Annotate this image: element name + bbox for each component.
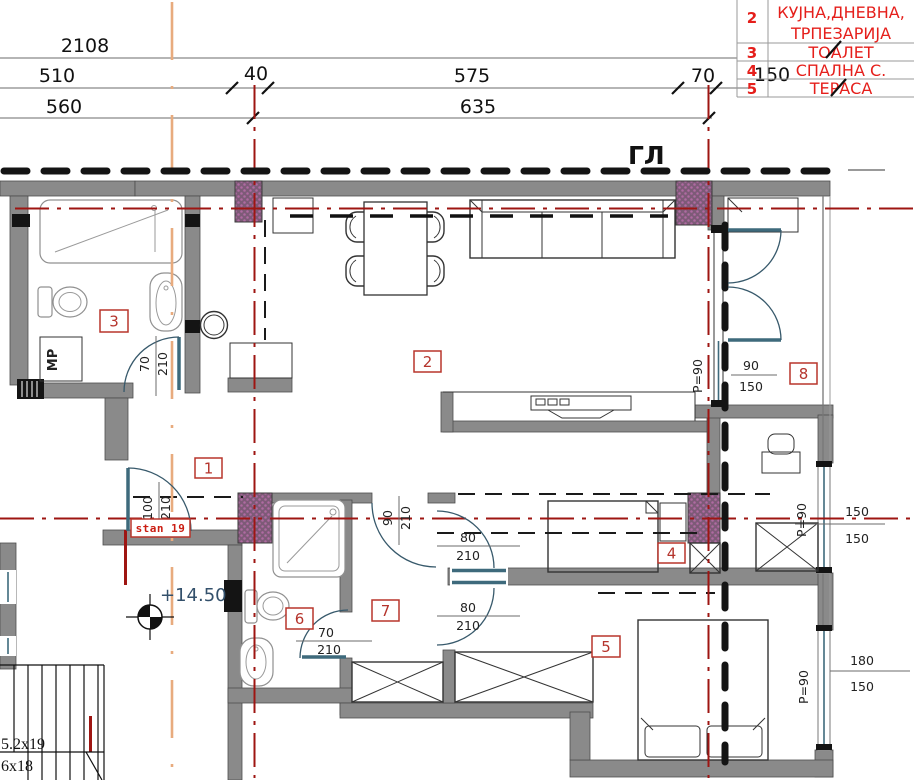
legend-num-3: 3 (747, 44, 757, 62)
toilet-bath (38, 287, 87, 317)
dimension-strings: 2108 510 40 575 70 150 560 635 (0, 35, 790, 124)
svg-text:8: 8 (799, 365, 809, 383)
svg-text:P=90: P=90 (794, 503, 809, 537)
wall-top-hatched (0, 181, 135, 196)
dim-hall-lower-door: 80 210 (437, 600, 520, 633)
legend-num-5: 5 (747, 80, 757, 98)
svg-text:5: 5 (601, 638, 611, 656)
svg-text:80: 80 (460, 530, 476, 545)
room-tag-corridor: 7 (372, 600, 399, 621)
wall-room5-bottom (570, 760, 833, 777)
dim-total: 2108 (61, 35, 109, 57)
wall-room7-top-post (428, 493, 455, 503)
wall-corridor-bottom (340, 703, 593, 718)
wall-hall-left (105, 398, 128, 460)
legend-label-toilet: ТОАЛЕТ (807, 43, 873, 62)
column-icon (235, 181, 262, 222)
section-label: ГЛ (628, 141, 665, 170)
svg-text:210: 210 (456, 548, 480, 563)
dim-toilet-door: 70 210 (296, 625, 372, 657)
svg-text:stan 19: stan 19 (136, 522, 186, 535)
room-tag-hall: 1 (195, 458, 222, 478)
svg-text:210: 210 (456, 618, 480, 633)
wall-closet-post (443, 650, 455, 703)
svg-text:1: 1 (204, 460, 214, 478)
dim-40: 40 (244, 63, 268, 85)
svg-text:6: 6 (295, 610, 305, 628)
door-terrace-double (728, 230, 781, 340)
svg-text:150: 150 (850, 679, 874, 694)
svg-text:150: 150 (739, 379, 763, 394)
dim-510: 510 (39, 65, 75, 87)
dim-terrace-window: 90 150 P=90 (690, 358, 777, 394)
svg-text:P=90: P=90 (796, 670, 811, 704)
wardrobe-crossed (352, 523, 818, 702)
legend-label-kitchen-1: КУЈНА,ДНЕВНА, (777, 3, 905, 22)
wall-room6-bottom (228, 688, 352, 703)
svg-text:P=90: P=90 (690, 359, 705, 393)
washer-label: МР (46, 349, 61, 371)
wall-room5-left (570, 712, 590, 760)
apartment-label: stan 19 (131, 519, 190, 537)
dim-150-overlap: 150 (754, 64, 790, 86)
svg-text:3: 3 (109, 313, 119, 331)
level-label: +14.50 (160, 585, 227, 606)
legend-num-4: 4 (747, 62, 757, 80)
round-table (201, 312, 228, 339)
svg-text:4: 4 (667, 545, 677, 563)
svg-text:80: 80 (460, 600, 476, 615)
wall-right-post-upper (818, 415, 833, 463)
svg-text:100: 100 (140, 496, 155, 520)
dim-bath-door: 70 210 (137, 336, 170, 396)
wall-kitchen-band (443, 421, 716, 432)
dim-575: 575 (454, 65, 490, 87)
room-tag-bathroom: 3 (100, 310, 128, 332)
svg-text:90: 90 (743, 358, 759, 373)
room-tag-terrace: 8 (790, 363, 817, 384)
svg-text:150: 150 (845, 504, 869, 519)
legend-label-terrace: ТЕРАСА (809, 79, 873, 98)
washbasin-bath (150, 273, 182, 331)
toilet-wc (245, 590, 289, 623)
dim-bedroom1-door: 80 210 (437, 530, 520, 563)
room-tag-living: 2 (414, 351, 441, 372)
shower-tray (273, 500, 345, 577)
stair-note-1: 5.2x19 (1, 736, 45, 753)
washbasin-toilet (240, 638, 273, 686)
svg-text:210: 210 (317, 642, 341, 657)
wall-kitchen-stub (228, 378, 292, 392)
legend-num-2: 2 (747, 9, 757, 27)
room-tag-toilet: 6 (286, 608, 313, 629)
kitchen-counter-hood (443, 392, 695, 421)
desk-chair (762, 434, 800, 473)
svg-text:70: 70 (137, 356, 152, 372)
dim-bedroom-window: 180 150 P=90 (796, 653, 910, 704)
floor-plan-canvas: 2108 510 40 575 70 150 560 635 2 КУЈНА,Д… (0, 0, 914, 780)
svg-text:180: 180 (850, 653, 874, 668)
furniture (38, 198, 818, 760)
dim-study-window: 150 150 P=90 (794, 503, 885, 546)
svg-text:7: 7 (381, 602, 391, 620)
legend-label-kitchen-2: ТРПЕЗАРИЈА (790, 24, 891, 43)
column-icon (676, 181, 712, 225)
vent-shaft (17, 379, 44, 399)
svg-text:2: 2 (423, 353, 433, 371)
dim-corridor-door: 90 210 (380, 496, 413, 545)
structural-columns (235, 181, 720, 543)
stair-note-2: 6x18 (1, 758, 33, 775)
wall-counter-left (441, 392, 453, 432)
room-tag-bedroom1: 4 (658, 543, 685, 563)
svg-text:210: 210 (155, 352, 170, 376)
legend-label-bedroom: СПАЛНА С. (796, 61, 887, 80)
room-tag-bedroom2: 5 (592, 636, 620, 657)
bedroom-window (816, 625, 832, 750)
svg-text:70: 70 (318, 625, 334, 640)
dim-635: 635 (460, 96, 496, 118)
wall-right-post-mid (818, 573, 833, 630)
dim-560: 560 (46, 96, 82, 118)
svg-text:150: 150 (845, 531, 869, 546)
svg-text:210: 210 (158, 496, 173, 520)
svg-text:90: 90 (380, 510, 395, 526)
svg-text:210: 210 (398, 506, 413, 530)
dim-70: 70 (691, 65, 715, 87)
shaft-post (224, 580, 242, 612)
terrace-closet (728, 198, 798, 232)
bed-double (638, 620, 768, 760)
upper-cabinet (230, 198, 313, 378)
